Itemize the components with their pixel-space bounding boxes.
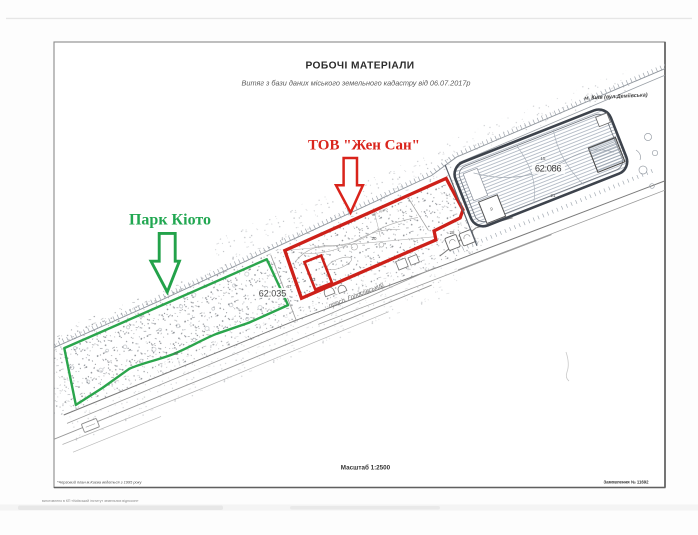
svg-text:РОБОЧІ МАТЕРІАЛИ: РОБОЧІ МАТЕРІАЛИ	[306, 60, 415, 71]
svg-text:15: 15	[541, 156, 546, 161]
svg-text:47: 47	[287, 284, 292, 289]
svg-text:виготовлено в КП «Київський ін: виготовлено в КП «Київський інститут зем…	[42, 499, 139, 503]
svg-text:*Черговий план м.Києва ведетьс: *Черговий план м.Києва ведеться з 1995 р…	[57, 480, 143, 485]
svg-text:43: 43	[311, 277, 316, 282]
svg-text:Витяг з бази даних міського зе: Витяг з бази даних міського земельного к…	[242, 79, 471, 88]
svg-text:42: 42	[174, 351, 179, 356]
svg-text:62:086: 62:086	[535, 163, 561, 174]
svg-text:21: 21	[551, 193, 556, 198]
svg-text:20: 20	[372, 236, 377, 241]
svg-text:ТОВ "Жен Сан": ТОВ "Жен Сан"	[308, 138, 420, 154]
svg-text:Парк Кіото: Парк Кіото	[129, 212, 211, 229]
svg-text:62:035: 62:035	[259, 289, 287, 299]
svg-text:Масштаб 1:2500: Масштаб 1:2500	[341, 463, 391, 471]
svg-text:28: 28	[450, 230, 455, 235]
svg-text:Замовлення № 11692: Замовлення № 11692	[603, 480, 649, 485]
